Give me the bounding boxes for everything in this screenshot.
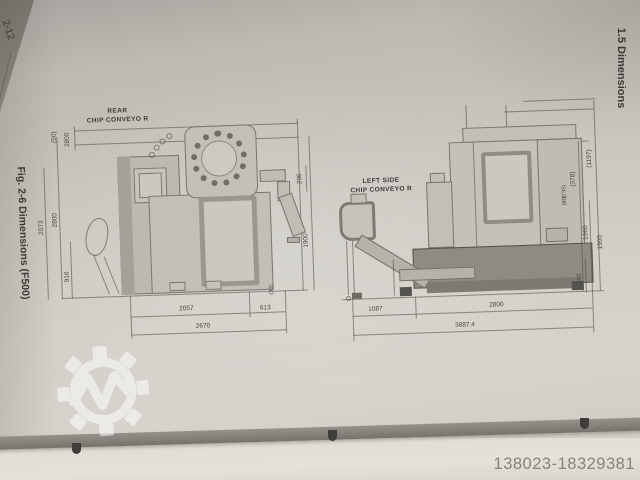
rear-chute-line — [93, 255, 110, 294]
gear-watermark-icon — [48, 334, 159, 445]
rear-column-window-inner — [139, 172, 163, 198]
side-dim-1087: 1087 — [368, 305, 383, 313]
section-heading: 1.5 Dimensions — [615, 28, 627, 109]
rear-bottom-dim-line-1 — [131, 311, 286, 317]
side-ext-line — [504, 108, 594, 112]
rear-right-dim-1900-line — [308, 136, 314, 290]
rear-arm-box — [260, 169, 286, 182]
rear-dim-2670: 2670 — [196, 322, 211, 330]
rear-pipe-foot — [287, 237, 300, 243]
side-dim-1560: 1560 — [582, 225, 590, 240]
rear-dim-1900: 1900 — [302, 233, 310, 248]
rear-dim-2073: 2073 — [38, 220, 46, 235]
rear-bottom-ext-2 — [249, 291, 251, 317]
conveyor-leg — [346, 241, 349, 295]
rear-pipe-diagonal — [278, 193, 306, 237]
rear-right-dim-295-line — [305, 165, 307, 191]
rear-dim-note-30: (30) — [269, 285, 275, 295]
rear-motor-blob — [82, 216, 111, 258]
side-bottom-dim-line-1 — [353, 308, 593, 317]
side-dim-1900: 1900 — [596, 235, 604, 250]
rear-dim-2057: 2057 — [179, 305, 194, 313]
rear-dim-916: 916 — [63, 271, 70, 282]
side-dim-1197: (1197) — [586, 149, 594, 168]
rear-tool-chain-dot — [166, 133, 172, 139]
rear-tool-chain-dot — [154, 145, 160, 151]
side-foot-pad — [400, 287, 412, 296]
binder-ring — [328, 430, 337, 441]
side-door-window — [481, 151, 533, 225]
rear-dim-613: 613 — [260, 304, 271, 311]
side-dim-2800: 2800 — [489, 301, 504, 309]
rear-foot-tab — [169, 282, 185, 292]
rear-view-subtitle: CHIP CONVEYO R — [87, 115, 149, 124]
conveyor-hood-cap — [350, 193, 366, 204]
side-ext-line — [523, 98, 595, 102]
rear-door-frame — [198, 195, 259, 287]
rear-view-title: REAR — [107, 107, 127, 115]
manual-page-photo: REAR CHIP CONVEYO R (50) 2800 2073 2800 … — [0, 0, 640, 480]
binder-ring — [72, 443, 81, 454]
rear-dim-2800-top: 2800 — [64, 132, 72, 147]
side-head-knob — [430, 173, 445, 184]
conveyor-leg — [352, 241, 355, 295]
side-head-box — [426, 181, 454, 248]
binder-ring — [580, 418, 589, 429]
rear-dim-295: 295 — [296, 173, 303, 184]
listing-id-watermark: 138023-18329381 — [494, 455, 635, 474]
side-dim-340: 340 — [576, 273, 583, 284]
conveyor-discharge-hood — [339, 201, 376, 241]
rear-tool-chain-dot — [159, 138, 165, 144]
side-bottom-ext-2 — [415, 297, 417, 319]
rear-dim-2800-left: 2800 — [51, 213, 59, 228]
side-cabinet-detail — [546, 227, 568, 242]
rear-foot-tab — [205, 280, 221, 290]
side-view-title: LEFT SIDE — [362, 177, 399, 185]
side-dim-378: (378) — [569, 171, 577, 186]
side-dim-80: (80) — [562, 195, 568, 205]
rear-bottom-dim-line-2 — [131, 329, 286, 335]
side-dim-3887-4: 3887.4 — [455, 321, 475, 329]
side-right-dim-line-outer — [593, 100, 601, 290]
rear-top-ext-right — [297, 119, 304, 291]
